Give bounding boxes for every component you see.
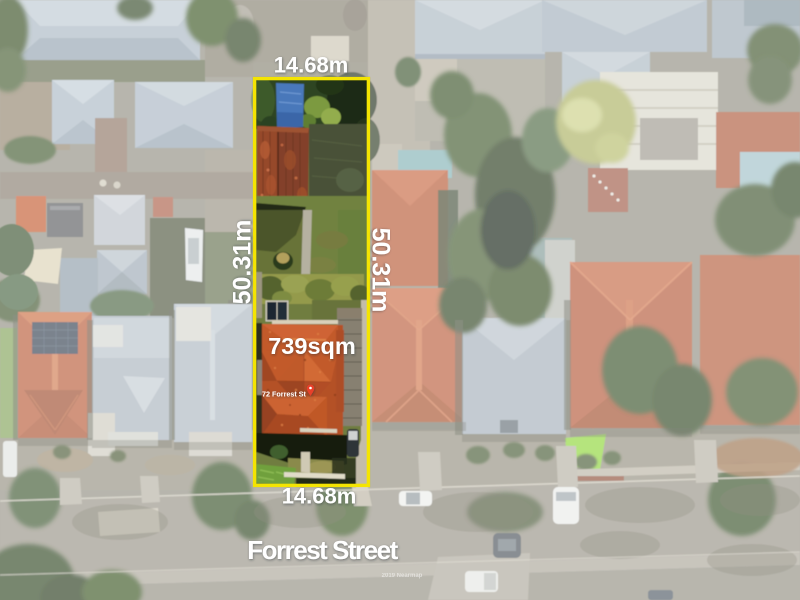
svg-text:Forrest Street: Forrest Street [247, 535, 398, 565]
svg-text:2019 Nearmap: 2019 Nearmap [382, 573, 423, 579]
svg-text:50.31m: 50.31m [367, 228, 395, 313]
svg-text:739sqm: 739sqm [268, 333, 356, 359]
svg-text:14.68m: 14.68m [274, 53, 349, 78]
svg-text:72 Forrest St: 72 Forrest St [262, 390, 307, 399]
svg-text:14.68m: 14.68m [282, 484, 357, 509]
svg-text:50.31m: 50.31m [229, 220, 257, 305]
